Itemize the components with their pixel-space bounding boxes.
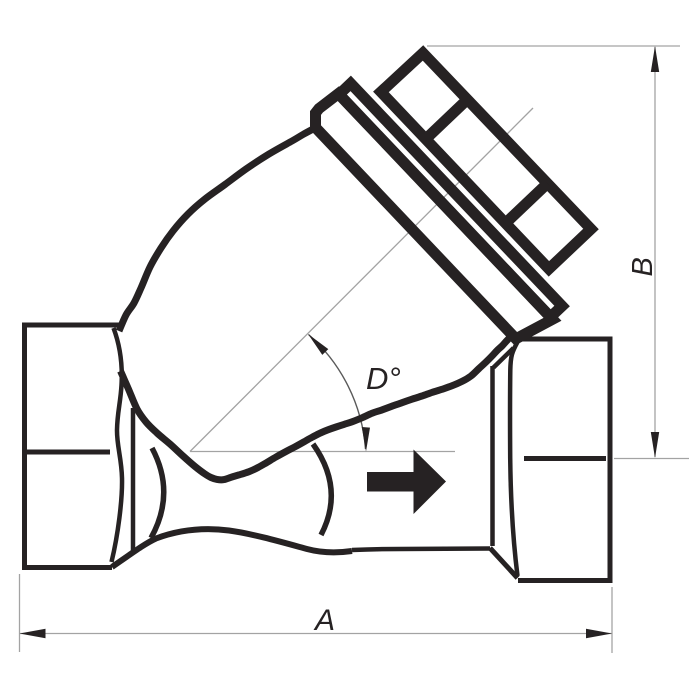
svg-text:B: B [627,257,659,276]
svg-text:D°: D° [366,361,401,396]
svg-text:A: A [313,604,335,637]
